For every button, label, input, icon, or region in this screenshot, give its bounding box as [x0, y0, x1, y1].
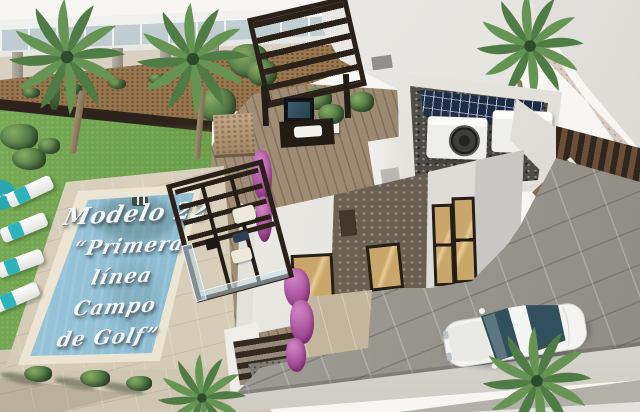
palm-tree — [478, 322, 596, 412]
bush — [0, 124, 38, 150]
roof-vent — [371, 55, 393, 71]
bush — [348, 92, 374, 112]
palm-tree — [4, 0, 130, 120]
window-tall — [452, 197, 478, 284]
bush — [126, 376, 152, 391]
palm-tree — [132, 0, 254, 120]
ac-unit — [426, 116, 487, 160]
bush — [38, 138, 60, 154]
tv-screen — [288, 102, 310, 118]
stone-pillar — [213, 113, 255, 158]
window — [366, 242, 405, 291]
bush — [80, 370, 110, 387]
seat-cushion — [230, 246, 253, 264]
ac-fan — [448, 125, 480, 157]
bougainvillea — [286, 338, 306, 372]
towel-stack — [294, 125, 323, 138]
door-recess — [339, 209, 358, 237]
car-mirror — [479, 308, 486, 315]
tv-unit — [284, 98, 314, 122]
palm-tree — [154, 350, 250, 412]
villa-render-scene: Modelo 22 “Primera línea Campo de Golf” — [0, 0, 640, 412]
bush — [24, 366, 52, 382]
